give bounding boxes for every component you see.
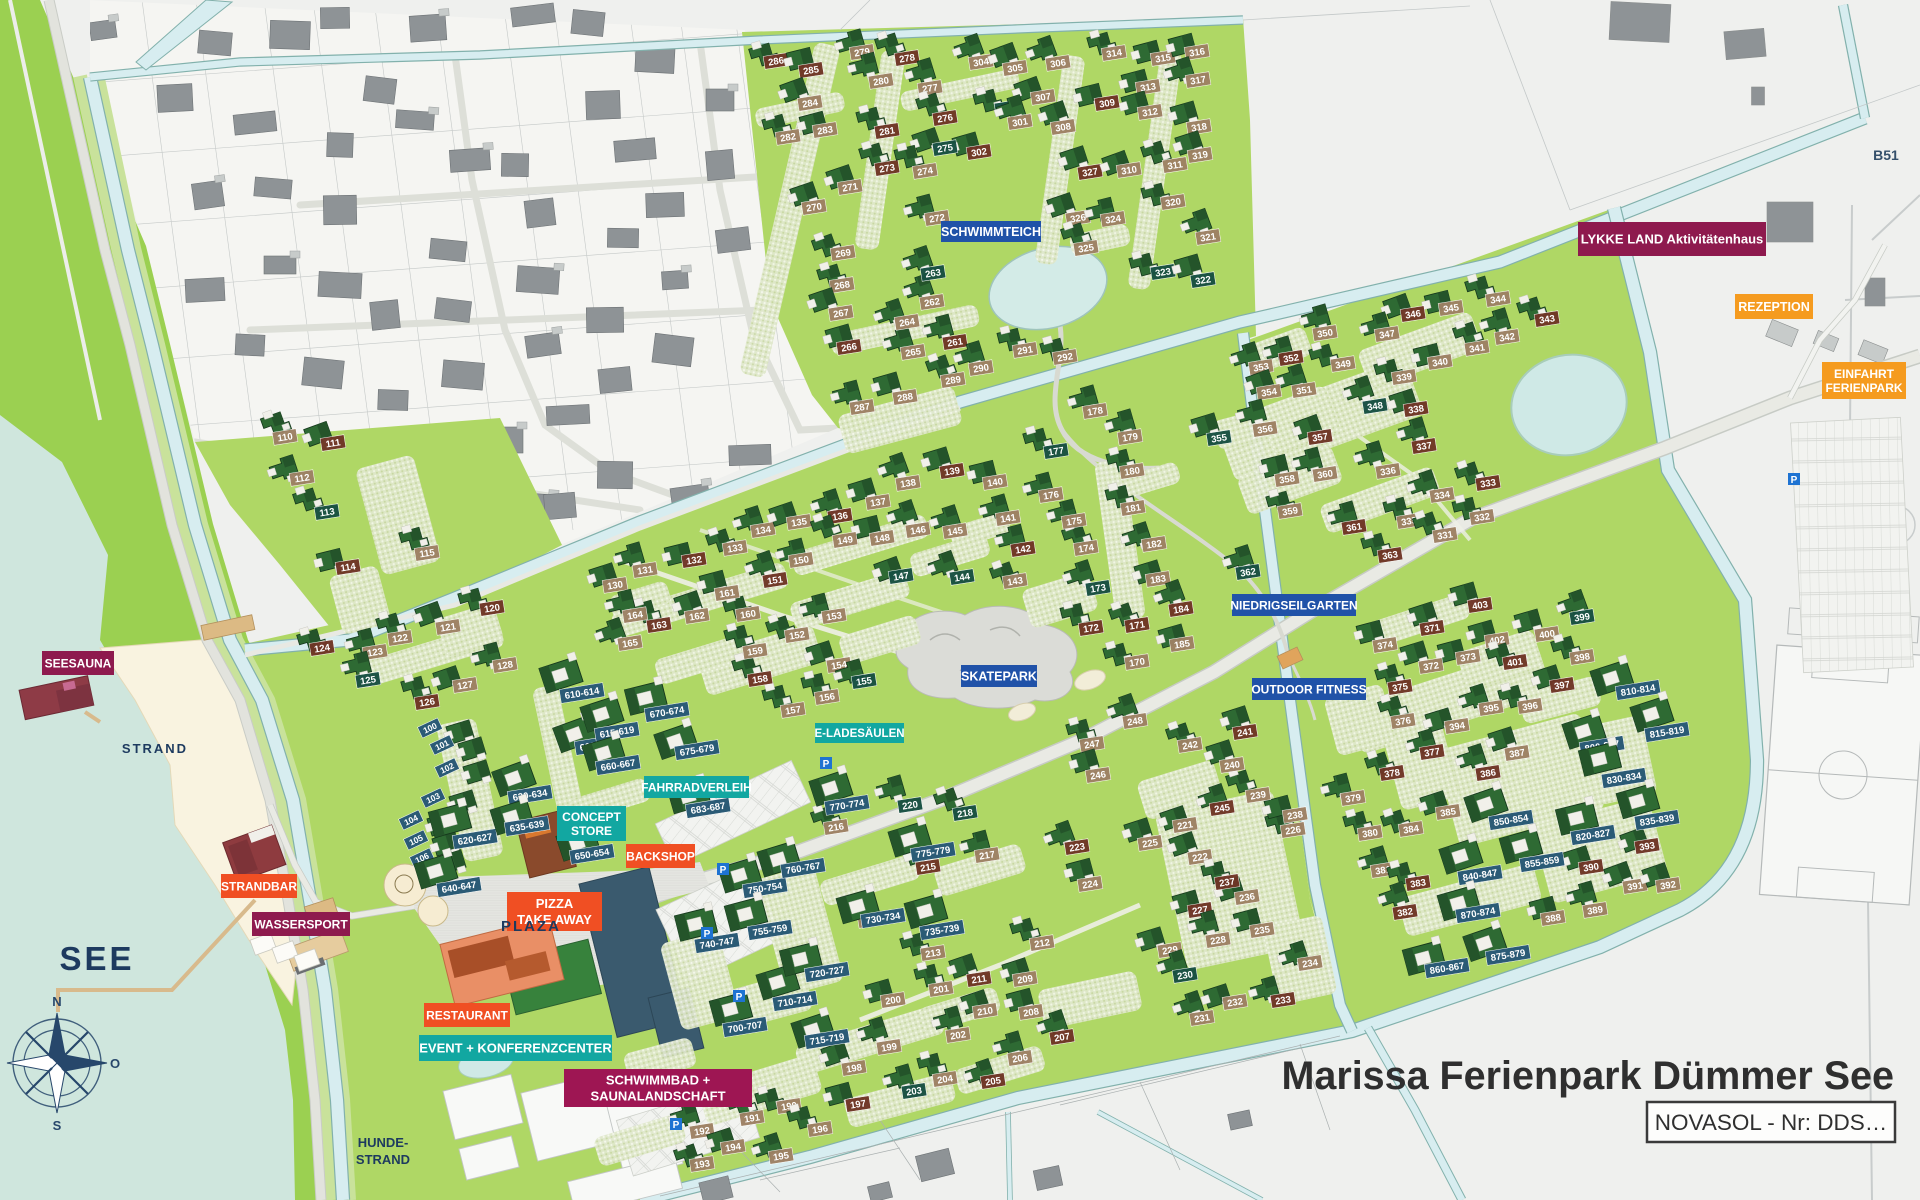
svg-text:P: P — [704, 929, 711, 940]
svg-text:SAUNALANDSCHAFT: SAUNALANDSCHAFT — [590, 1089, 725, 1104]
svg-text:EVENT + KONFERENZCENTER: EVENT + KONFERENZCENTER — [419, 1041, 612, 1056]
svg-text:STORE: STORE — [571, 824, 612, 838]
svg-text:FAHRRADVERLEIH: FAHRRADVERLEIH — [641, 780, 752, 794]
svg-text:NOVASOL - Nr: DDS…: NOVASOL - Nr: DDS… — [1655, 1110, 1888, 1135]
svg-text:CONCEPT: CONCEPT — [562, 810, 621, 824]
svg-text:N: N — [52, 994, 61, 1009]
svg-text:Marissa Ferienpark Dümmer See: Marissa Ferienpark Dümmer See — [1281, 1054, 1894, 1098]
svg-text:RESTAURANT: RESTAURANT — [426, 1008, 508, 1022]
svg-text:P: P — [736, 992, 743, 1003]
svg-text:SEESAUNA: SEESAUNA — [45, 656, 112, 670]
svg-text:PIZZA: PIZZA — [536, 896, 574, 911]
svg-text:STRANDBAR: STRANDBAR — [221, 879, 297, 893]
svg-text:P: P — [720, 865, 727, 876]
svg-text:B51: B51 — [1873, 147, 1899, 163]
svg-text:REZEPTION: REZEPTION — [1738, 300, 1810, 314]
svg-text:P: P — [1791, 475, 1798, 486]
svg-text:SEE: SEE — [59, 940, 134, 977]
svg-text:O: O — [110, 1056, 120, 1071]
svg-text:LYKKE LAND Aktivitätenhaus: LYKKE LAND Aktivitätenhaus — [1581, 232, 1764, 247]
svg-text:EINFAHRT: EINFAHRT — [1834, 367, 1895, 381]
svg-text:E-LADESÄULEN: E-LADESÄULEN — [814, 727, 904, 740]
svg-text:P: P — [673, 1120, 680, 1131]
svg-text:WASSERSPORT: WASSERSPORT — [254, 917, 348, 931]
svg-text:STRAND: STRAND — [356, 1152, 410, 1167]
svg-text:P: P — [823, 759, 830, 770]
svg-text:PLAZA: PLAZA — [501, 918, 561, 935]
svg-text:S: S — [53, 1118, 62, 1133]
svg-text:SCHWIMMBAD +: SCHWIMMBAD + — [606, 1073, 711, 1088]
svg-text:STRAND: STRAND — [122, 741, 188, 756]
svg-text:HUNDE-: HUNDE- — [358, 1135, 409, 1150]
svg-text:SCHWIMMTEICH: SCHWIMMTEICH — [941, 225, 1041, 239]
svg-text:OUTDOOR FITNESS: OUTDOOR FITNESS — [1251, 682, 1366, 696]
svg-text:SKATEPARK: SKATEPARK — [961, 670, 1037, 684]
svg-text:FERIENPARK: FERIENPARK — [1825, 381, 1902, 395]
svg-text:NIEDRIGSEILGARTEN: NIEDRIGSEILGARTEN — [1230, 598, 1357, 612]
svg-text:BACKSHOP: BACKSHOP — [626, 849, 695, 863]
